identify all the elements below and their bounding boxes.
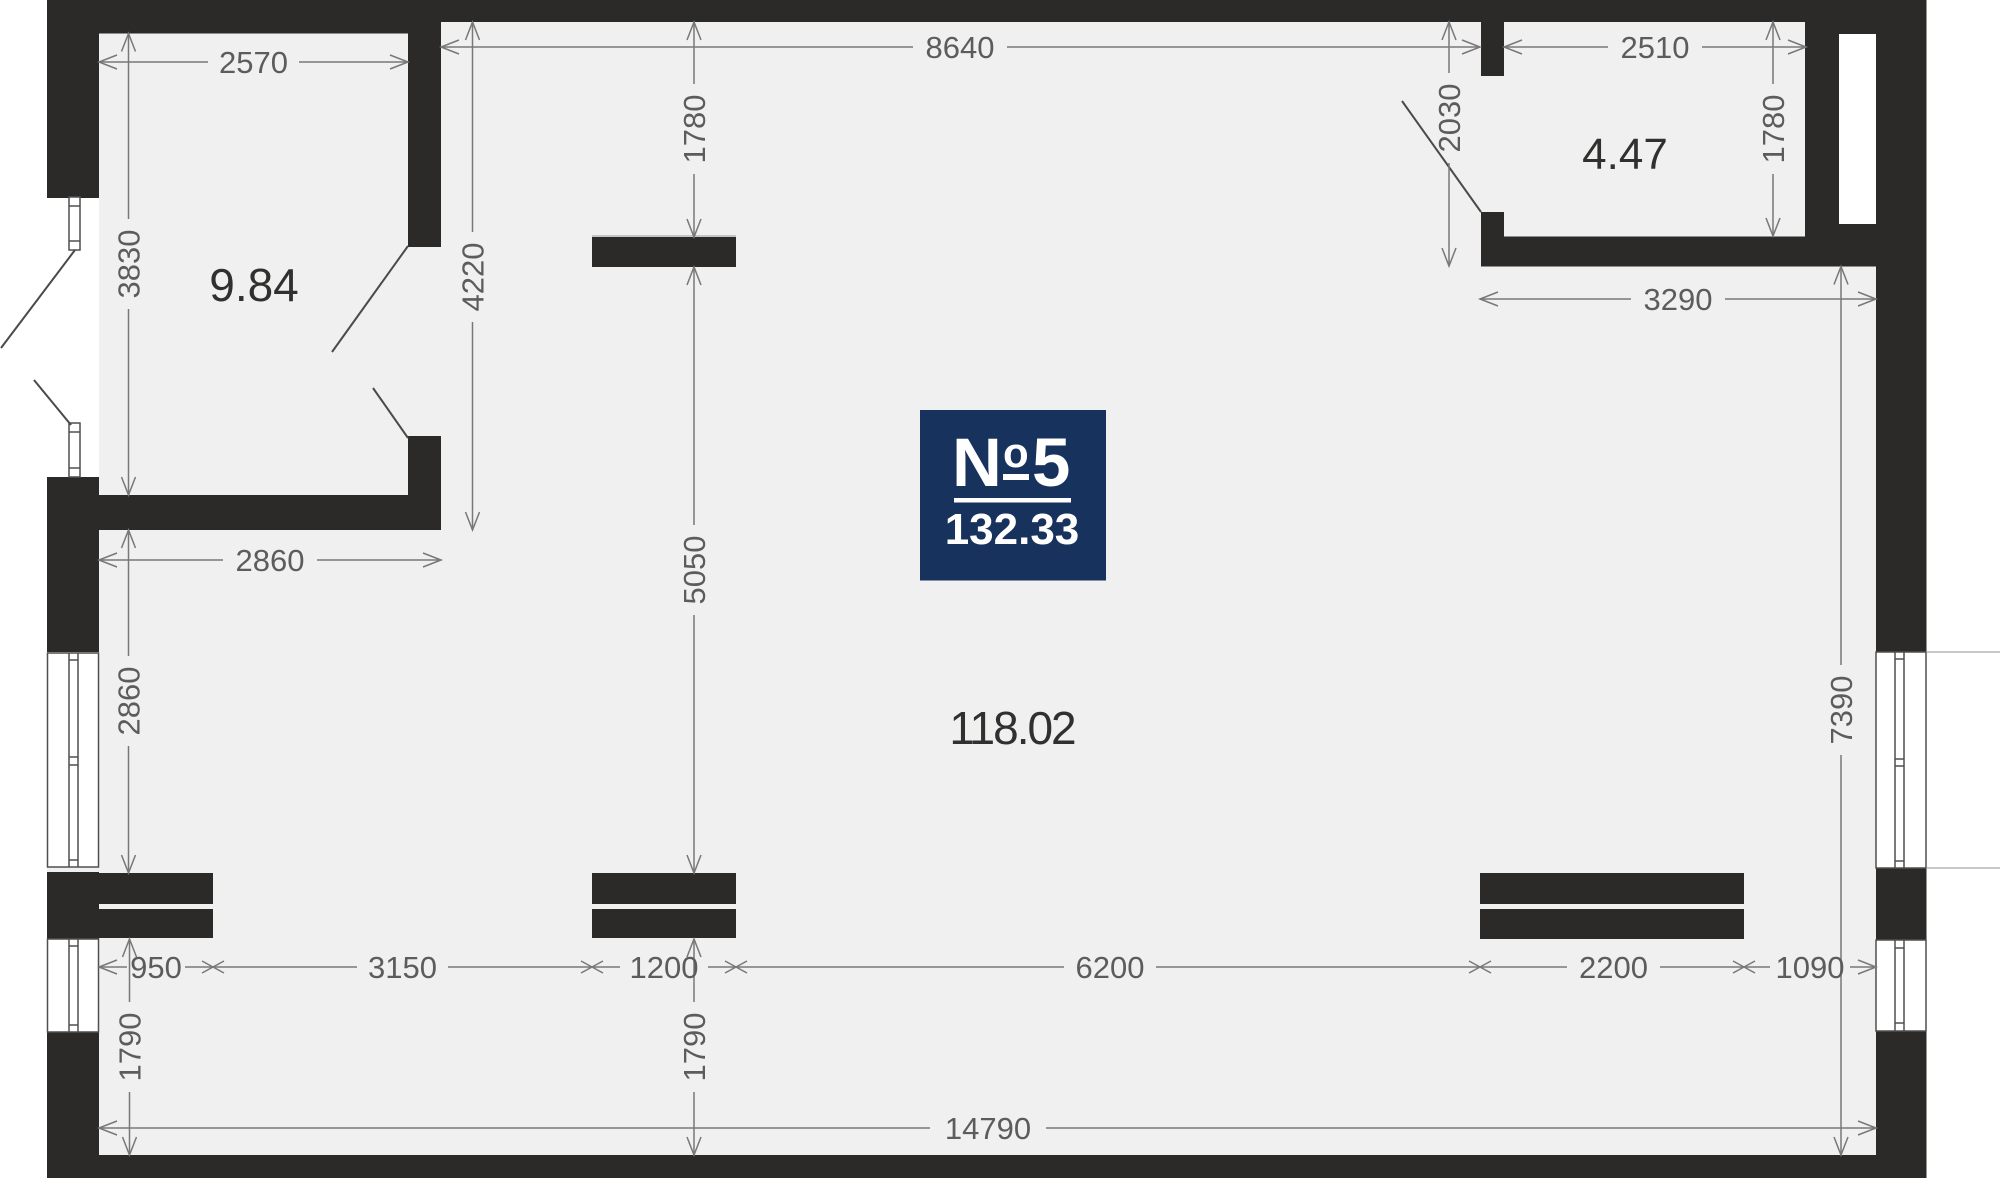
svg-text:7390: 7390 (1824, 676, 1859, 745)
svg-text:2570: 2570 (219, 45, 288, 80)
svg-text:2860: 2860 (112, 667, 147, 736)
svg-text:6200: 6200 (1076, 950, 1145, 985)
svg-text:2860: 2860 (236, 543, 305, 578)
svg-text:3150: 3150 (368, 950, 437, 985)
svg-text:5: 5 (1032, 424, 1070, 501)
svg-text:1790: 1790 (113, 1013, 148, 1082)
svg-text:132.33: 132.33 (945, 505, 1080, 554)
svg-text:8640: 8640 (926, 30, 995, 65)
svg-text:4220: 4220 (456, 243, 491, 312)
svg-text:1200: 1200 (630, 950, 699, 985)
svg-text:2030: 2030 (1432, 84, 1467, 153)
svg-text:4.47: 4.47 (1582, 130, 1668, 179)
svg-text:1780: 1780 (677, 95, 712, 164)
svg-text:3830: 3830 (112, 230, 147, 299)
svg-text:N: N (952, 424, 1002, 501)
svg-text:1780: 1780 (1756, 95, 1791, 164)
svg-text:o: o (1003, 429, 1029, 476)
svg-text:3290: 3290 (1644, 282, 1713, 317)
svg-text:2200: 2200 (1579, 950, 1648, 985)
svg-text:5050: 5050 (677, 536, 712, 605)
svg-text:118.02: 118.02 (949, 702, 1075, 754)
svg-text:1790: 1790 (677, 1013, 712, 1082)
svg-text:950: 950 (130, 950, 182, 985)
svg-text:2510: 2510 (1621, 30, 1690, 65)
svg-text:9.84: 9.84 (209, 259, 299, 311)
svg-text:1090: 1090 (1776, 950, 1845, 985)
svg-text:14790: 14790 (945, 1111, 1031, 1146)
